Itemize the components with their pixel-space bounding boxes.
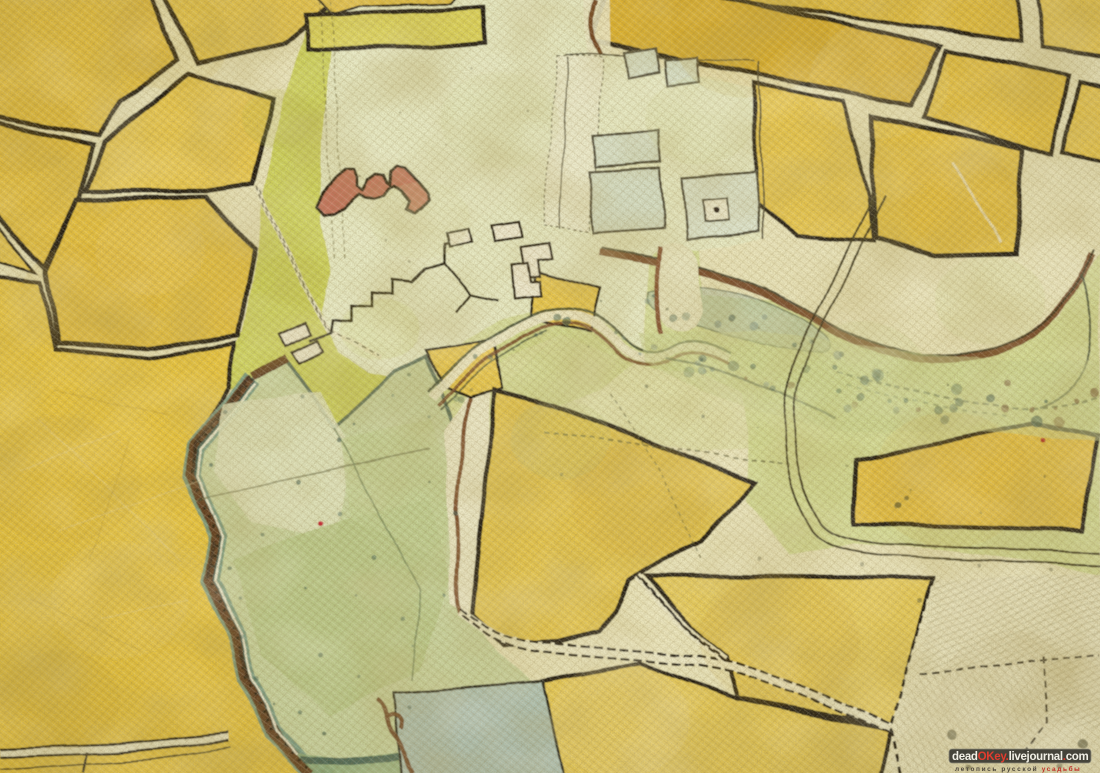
svg-text:летопись русской усадьбы: летопись русской усадьбы bbox=[955, 765, 1081, 773]
svg-text:deadOKey.livejournal.com: deadOKey.livejournal.com bbox=[952, 751, 1089, 763]
